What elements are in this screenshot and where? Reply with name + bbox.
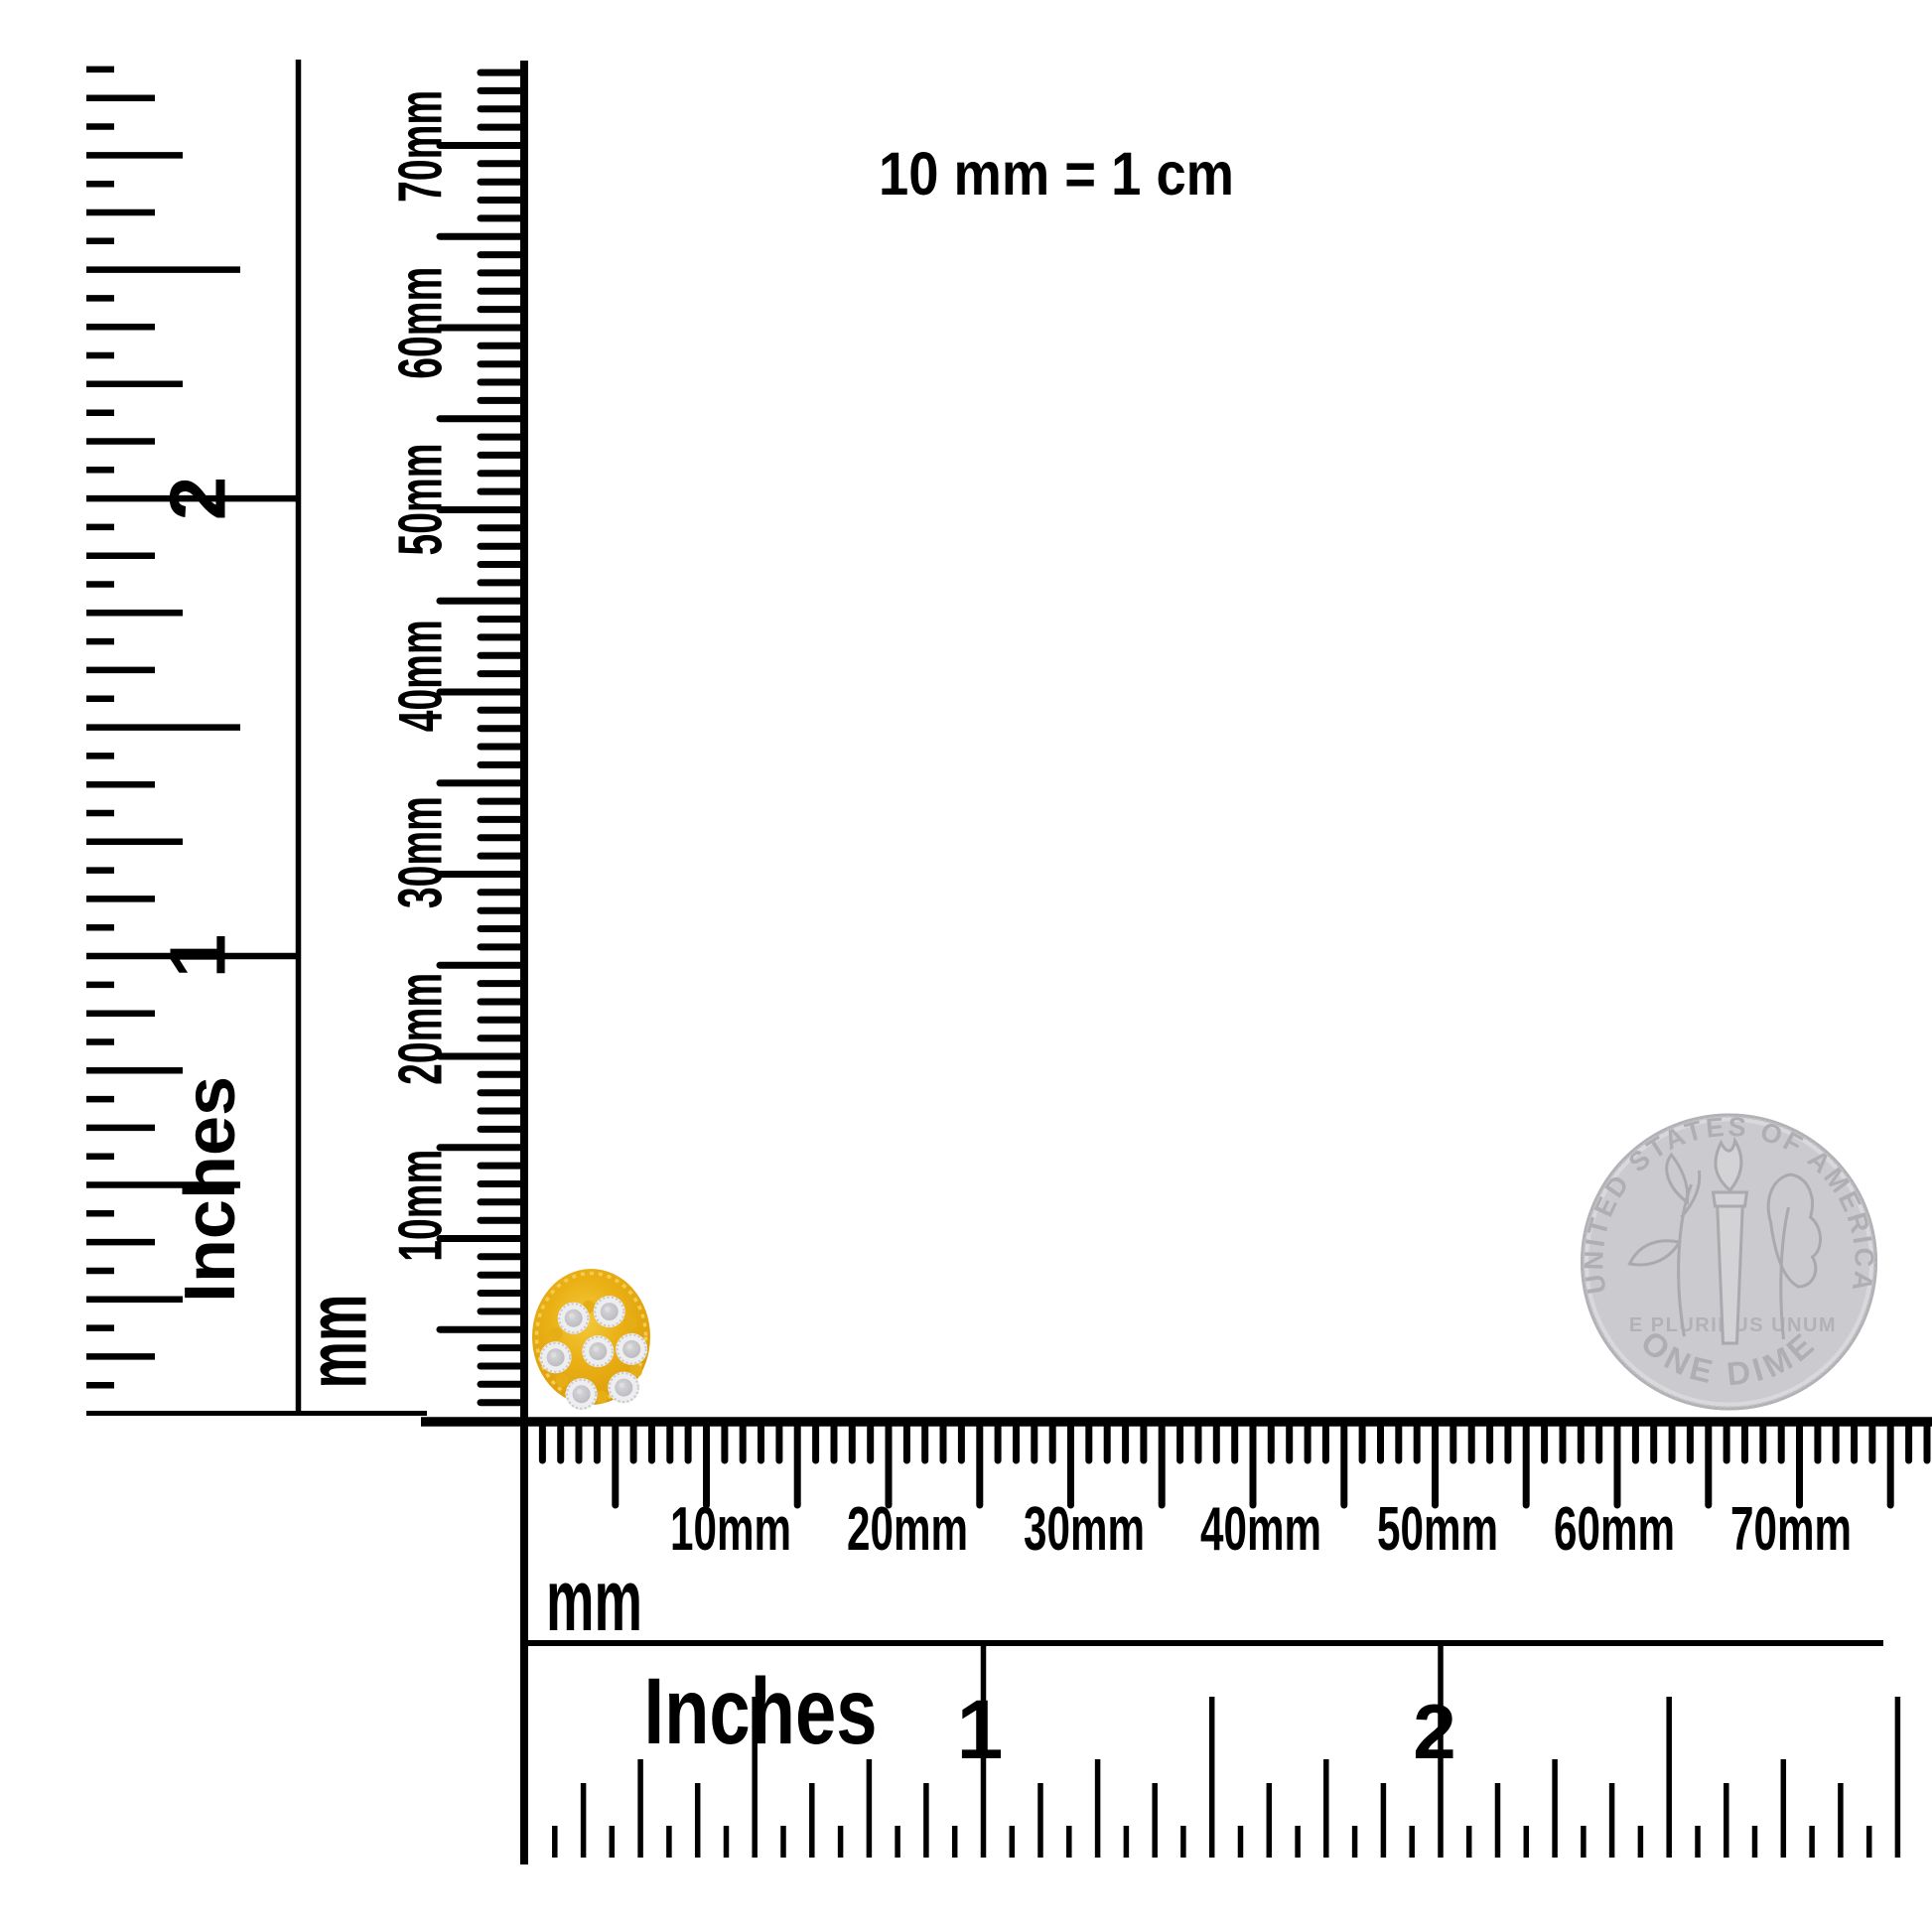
svg-text:10 mm = 1 cm: 10 mm = 1 cm — [879, 140, 1234, 207]
svg-text:1: 1 — [154, 934, 242, 979]
svg-text:30mm: 30mm — [1024, 1495, 1145, 1564]
svg-text:Inches: Inches — [171, 1076, 250, 1303]
svg-text:50mm: 50mm — [387, 444, 456, 556]
svg-text:mm: mm — [546, 1551, 642, 1649]
svg-text:10mm: 10mm — [670, 1495, 791, 1564]
svg-text:60mm: 60mm — [1554, 1495, 1675, 1564]
svg-text:30mm: 30mm — [387, 796, 456, 908]
svg-text:1: 1 — [957, 1683, 1004, 1776]
svg-text:40mm: 40mm — [1200, 1495, 1321, 1564]
svg-text:60mm: 60mm — [387, 267, 456, 379]
svg-text:2: 2 — [1413, 1688, 1455, 1775]
svg-text:40mm: 40mm — [387, 620, 456, 732]
svg-text:20mm: 20mm — [847, 1495, 968, 1564]
svg-text:70mm: 70mm — [1730, 1495, 1852, 1564]
svg-text:10mm: 10mm — [387, 1150, 456, 1262]
svg-text:50mm: 50mm — [1377, 1495, 1498, 1564]
svg-text:20mm: 20mm — [387, 973, 456, 1085]
svg-text:2: 2 — [154, 477, 242, 521]
svg-text:mm: mm — [291, 1295, 385, 1389]
svg-text:70mm: 70mm — [387, 90, 456, 203]
svg-text:Inches: Inches — [644, 1659, 878, 1764]
